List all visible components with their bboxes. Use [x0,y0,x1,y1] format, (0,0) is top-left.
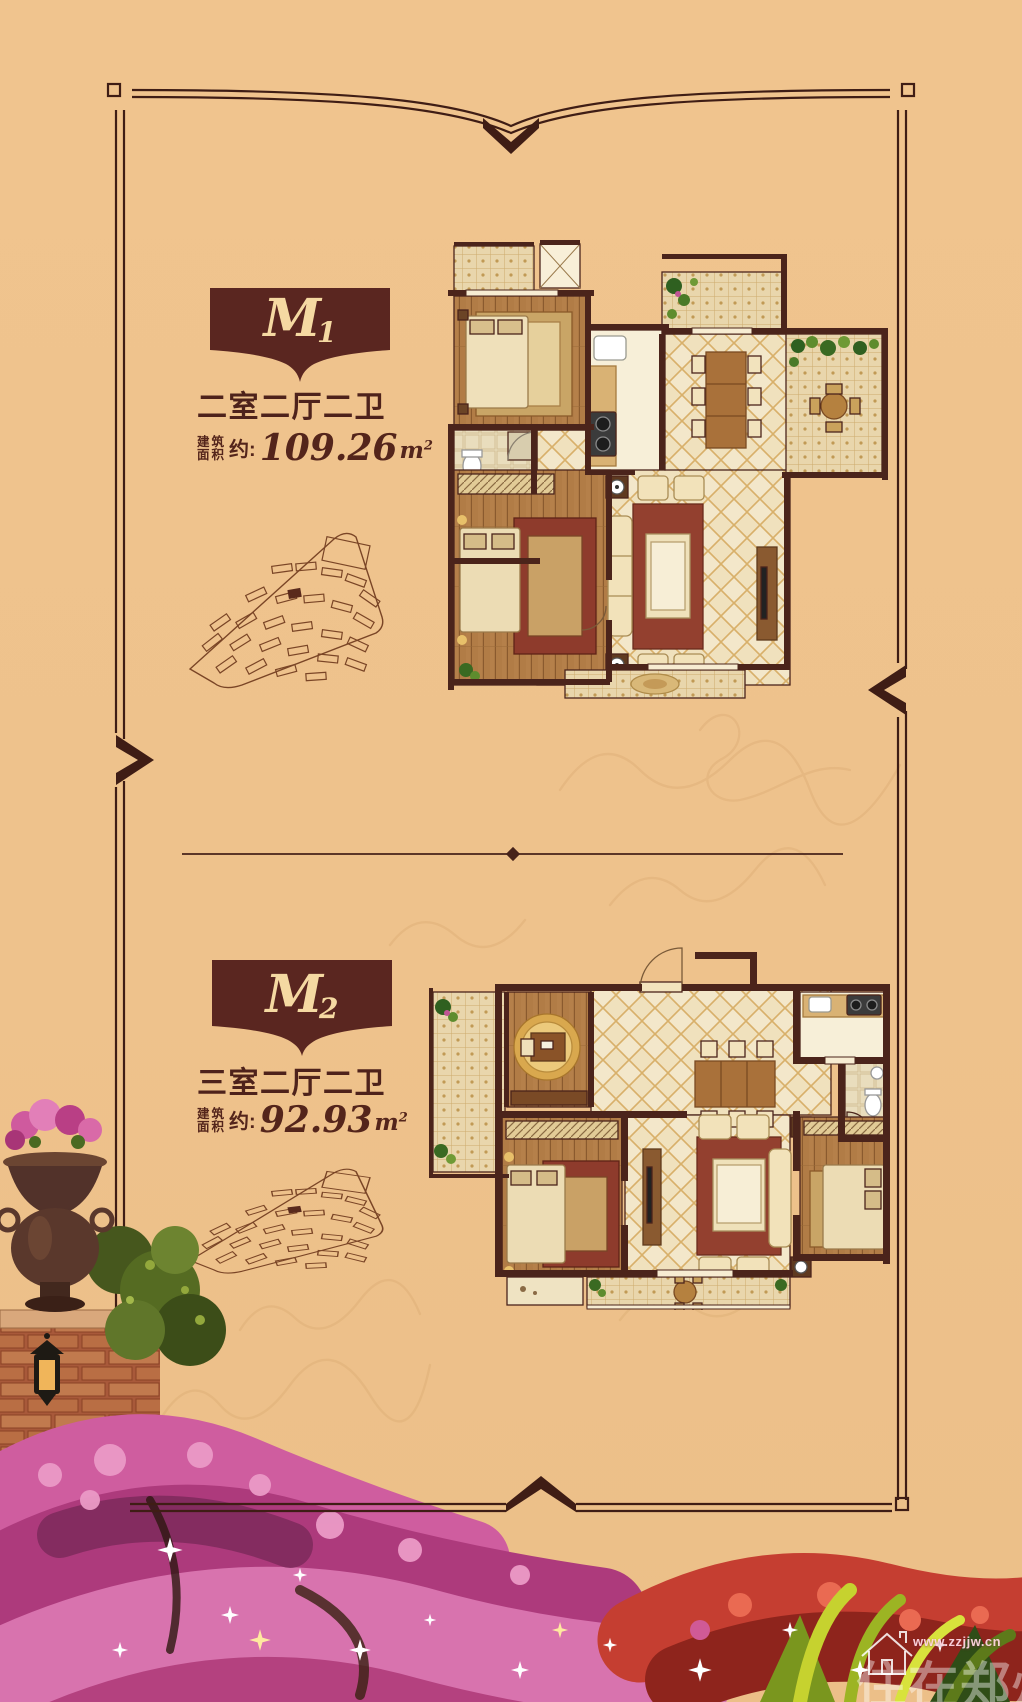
watermark-brand: 住在郑州 [856,1646,1022,1702]
unit-m2-badge-letter: M [265,964,323,1025]
unit-m1-area-value: 109.26 [260,430,398,466]
area-prefix: 建筑 面积 [197,436,226,466]
bottom-frame-border [0,1470,1022,1530]
unit-m1-layout-label: 二室二厅二卫 [197,382,386,426]
unit-m2-badge-number: 2 [319,992,338,1025]
unit-m1-badge-number: 1 [317,316,336,349]
unit-m1-badge: M1 [210,288,390,388]
unit-m1-floorplan [448,226,888,702]
unit-m1-siteplan-sketch [176,498,388,690]
unit-m1-area: 建筑 面积 约: 109.26 m2 [197,430,433,466]
unit-m1-badge-letter: M [263,288,321,349]
section-divider [182,847,843,861]
poster-page: M1 二室二厅二卫 建筑 面积 约: 109.26 m2 [0,0,1022,1702]
bottom-photo-collage [0,1030,1022,1702]
